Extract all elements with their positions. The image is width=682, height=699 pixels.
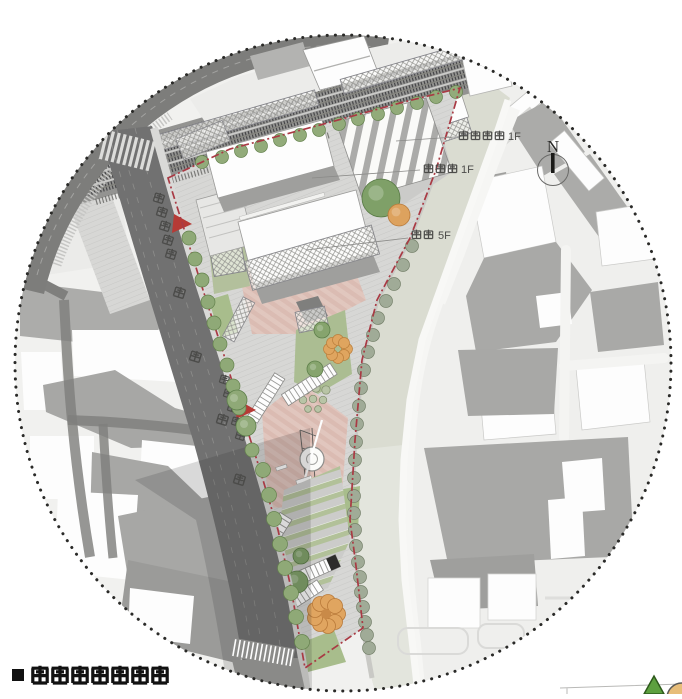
svg-text:1F: 1F [461, 164, 474, 176]
svg-text:N: N [547, 137, 559, 156]
svg-text:1F: 1F [508, 131, 521, 143]
svg-text:5F: 5F [438, 230, 451, 242]
